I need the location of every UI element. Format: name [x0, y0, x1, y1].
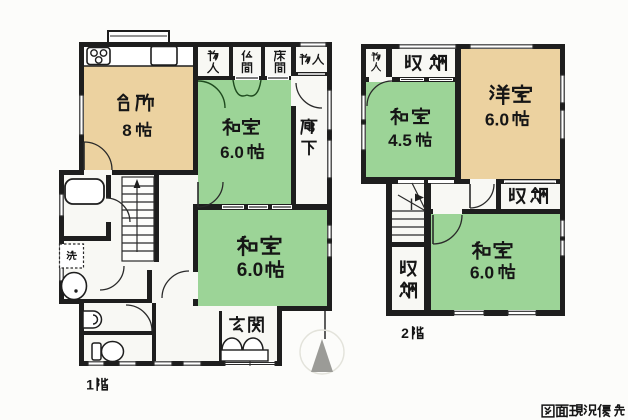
svg-text:6.0: 6.0	[237, 260, 263, 281]
svg-text:4.5: 4.5	[388, 131, 412, 150]
svg-text:1: 1	[86, 377, 94, 393]
svg-text:6.0: 6.0	[485, 110, 510, 130]
svg-text:2: 2	[401, 325, 409, 341]
svg-text:6.0: 6.0	[470, 263, 495, 283]
svg-text:6.0: 6.0	[220, 143, 244, 162]
svg-text:8: 8	[122, 121, 131, 140]
